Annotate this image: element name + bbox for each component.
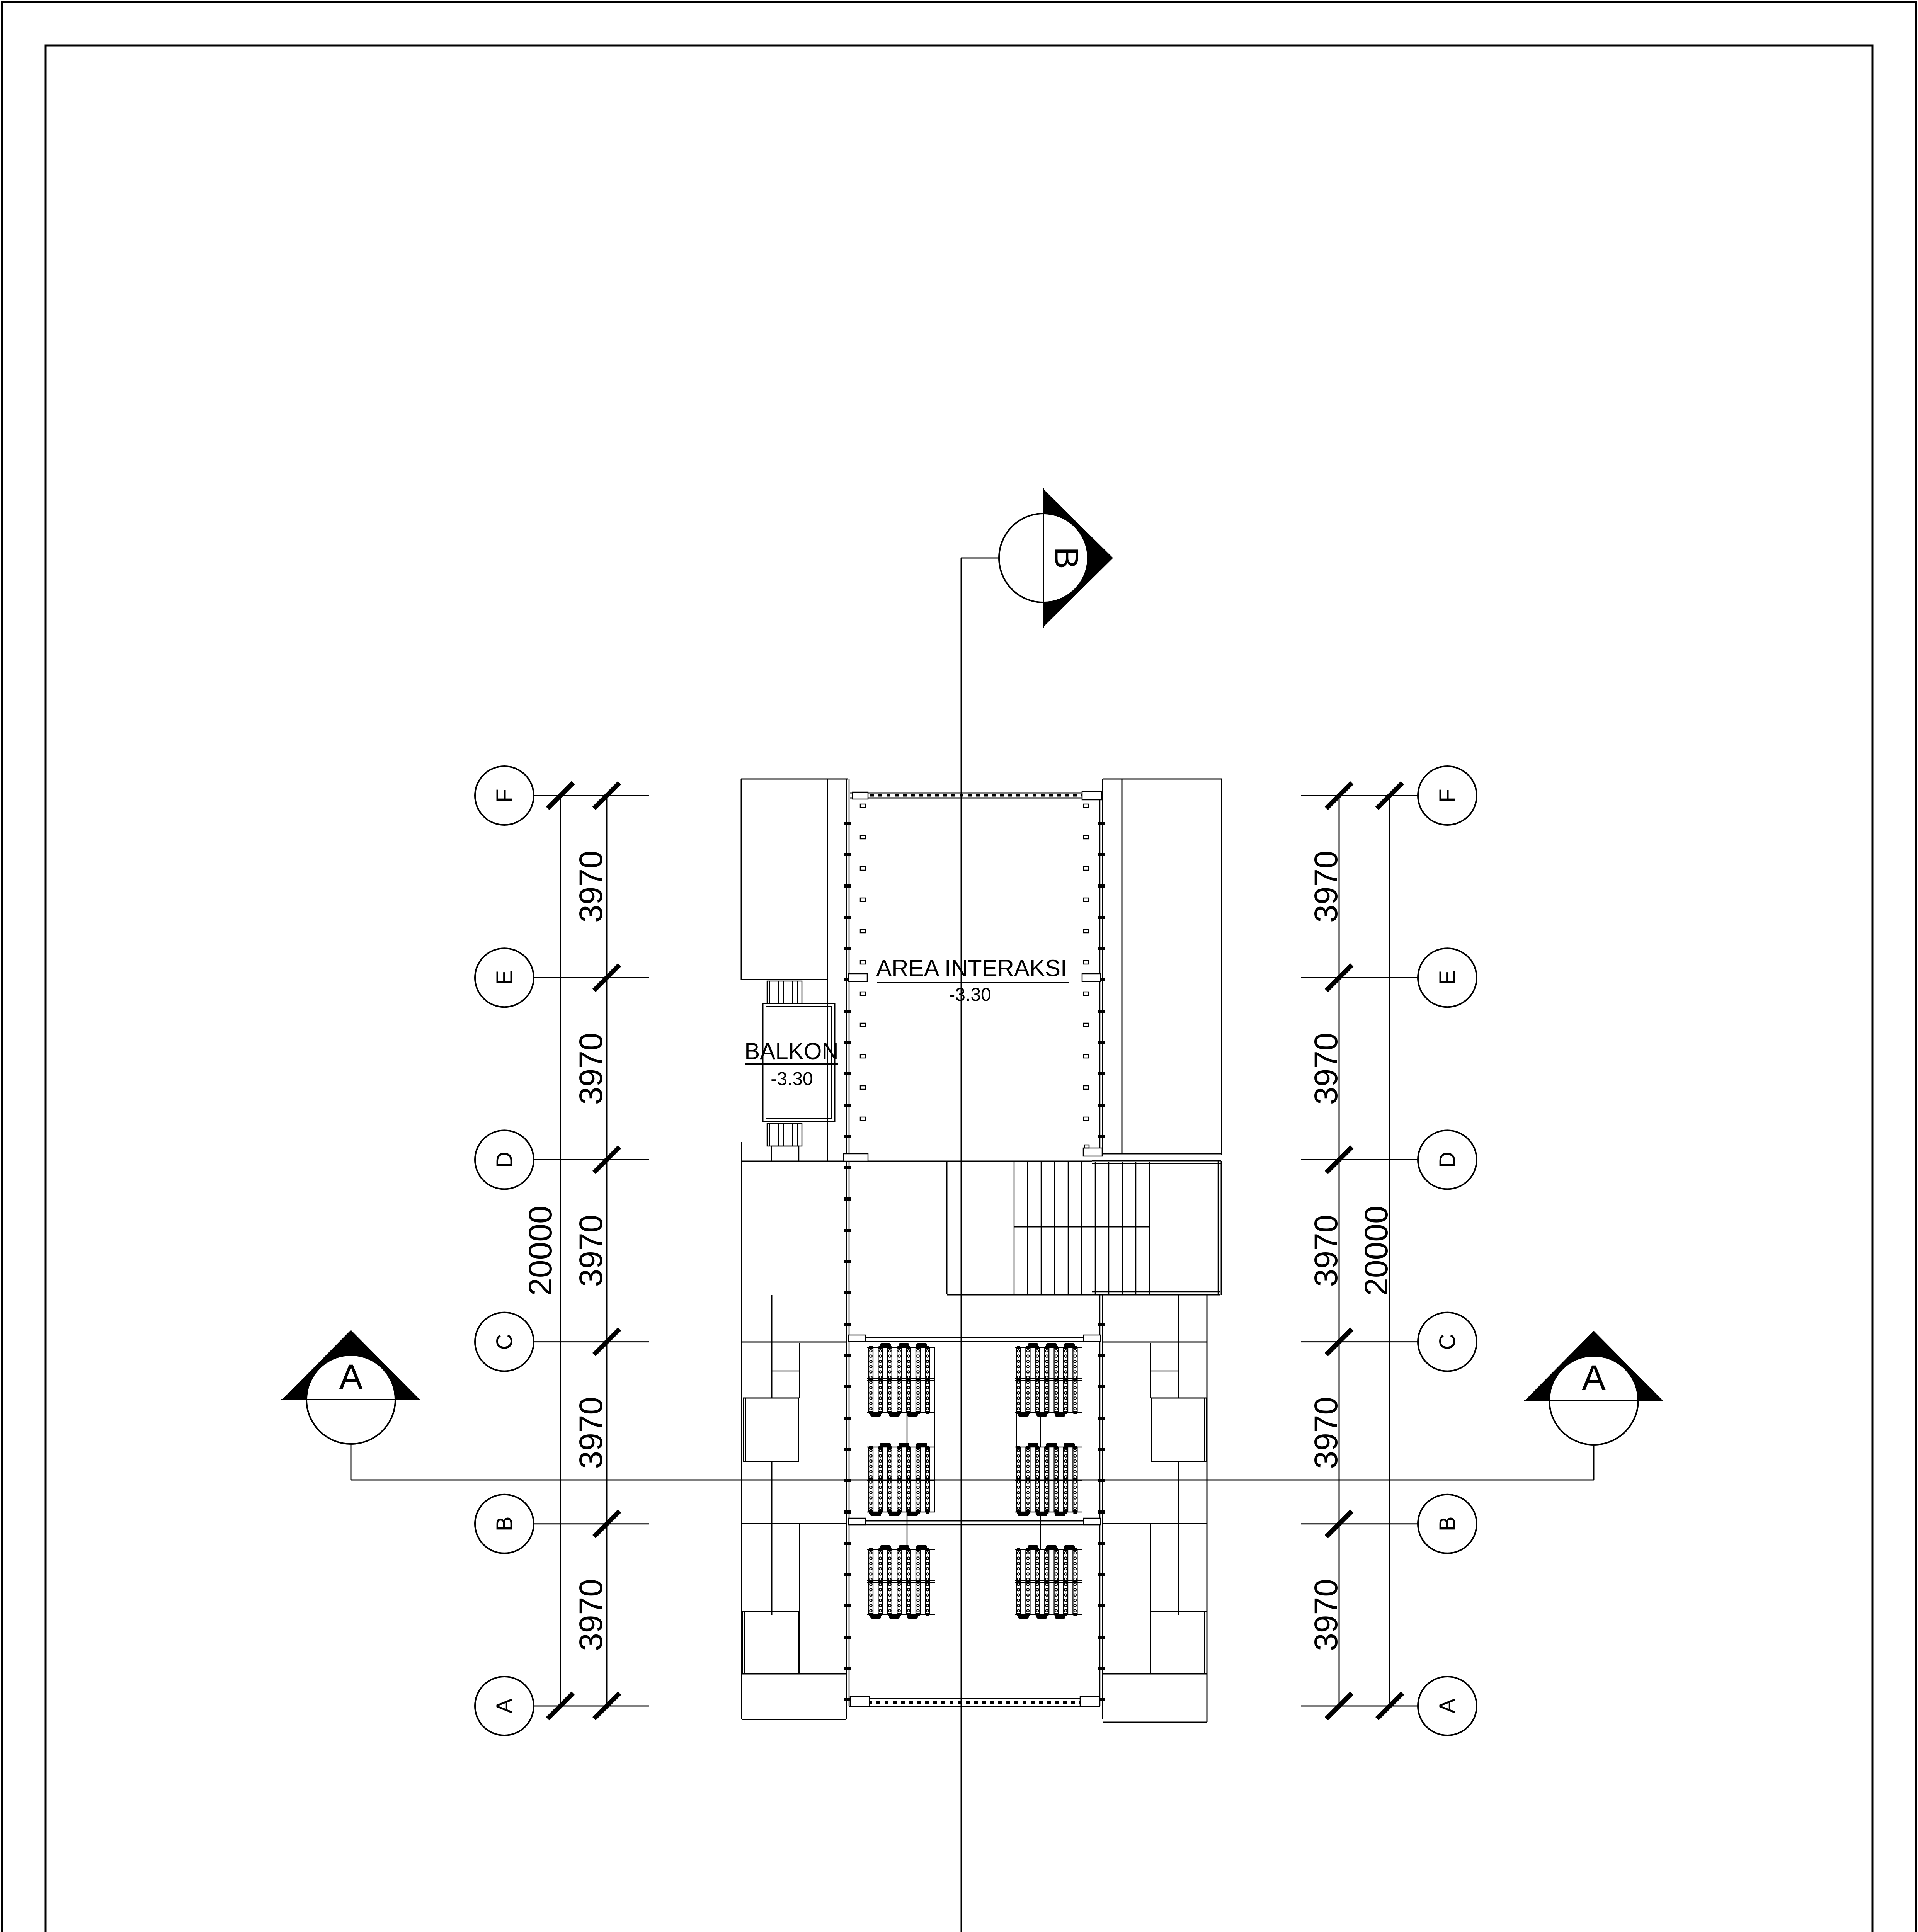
svg-text:3970: 3970: [573, 1397, 609, 1469]
svg-text:A: A: [339, 1357, 363, 1397]
svg-text:BALKON: BALKON: [744, 1038, 838, 1064]
svg-text:B: B: [1435, 1516, 1460, 1531]
svg-text:20000: 20000: [522, 1206, 558, 1296]
svg-text:C: C: [1435, 1334, 1460, 1350]
svg-text:D: D: [492, 1151, 517, 1168]
svg-text:A: A: [1435, 1698, 1460, 1713]
svg-text:F: F: [1435, 789, 1460, 802]
svg-text:-3.30: -3.30: [771, 1069, 813, 1089]
svg-text:3970: 3970: [573, 1032, 609, 1105]
svg-text:3970: 3970: [573, 1579, 609, 1651]
svg-text:C: C: [492, 1334, 517, 1350]
svg-text:AREA INTERAKSI: AREA INTERAKSI: [876, 955, 1067, 981]
svg-text:20000: 20000: [1358, 1206, 1394, 1296]
svg-text:3970: 3970: [573, 1215, 609, 1287]
svg-text:3970: 3970: [1308, 850, 1344, 923]
svg-text:A: A: [492, 1698, 517, 1713]
svg-text:3970: 3970: [1308, 1397, 1344, 1469]
svg-text:E: E: [492, 970, 517, 985]
svg-text:B: B: [492, 1516, 517, 1531]
svg-text:A: A: [1582, 1358, 1606, 1398]
svg-text:3970: 3970: [573, 850, 609, 923]
svg-text:3970: 3970: [1308, 1215, 1344, 1287]
svg-text:3970: 3970: [1308, 1579, 1344, 1651]
svg-text:E: E: [1435, 970, 1460, 985]
svg-text:D: D: [1435, 1151, 1460, 1168]
svg-text:B: B: [1048, 547, 1085, 569]
svg-text:F: F: [492, 789, 517, 802]
svg-text:3970: 3970: [1308, 1032, 1344, 1105]
svg-text:-3.30: -3.30: [949, 985, 991, 1005]
